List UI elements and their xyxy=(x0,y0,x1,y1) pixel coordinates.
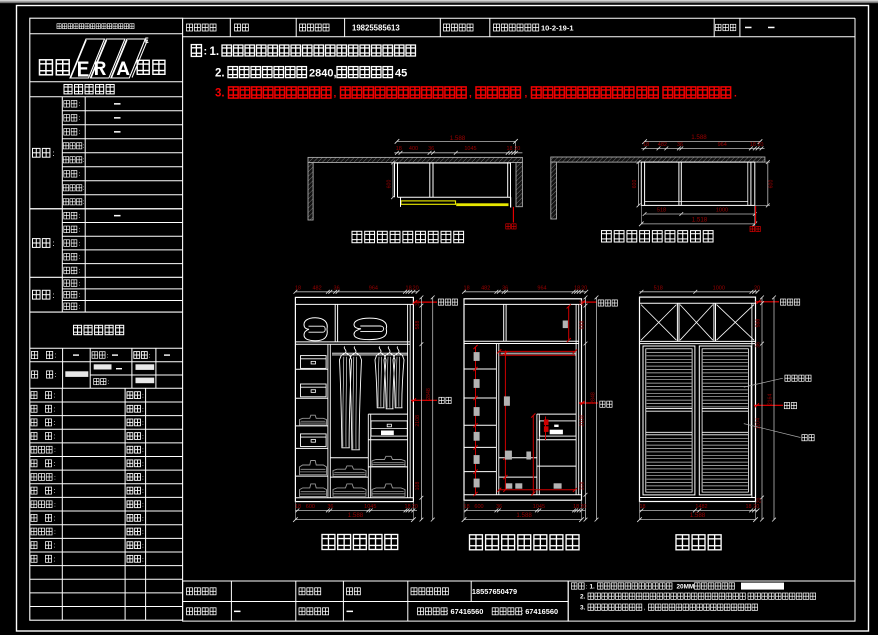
svg-text:1.: 1. xyxy=(590,583,596,590)
svg-text:18: 18 xyxy=(639,504,645,510)
svg-text::: : xyxy=(54,420,56,427)
svg-text:36: 36 xyxy=(327,504,333,510)
svg-text:482: 482 xyxy=(481,285,490,291)
svg-text::: : xyxy=(142,488,144,495)
svg-text::: : xyxy=(204,46,208,58)
svg-text:2.: 2. xyxy=(580,594,586,601)
svg-text:18: 18 xyxy=(574,285,580,291)
svg-text:600: 600 xyxy=(306,504,315,510)
svg-text::: : xyxy=(54,393,56,400)
svg-text:20: 20 xyxy=(581,285,587,291)
svg-text::: : xyxy=(79,280,81,287)
svg-text:18557650479: 18557650479 xyxy=(472,587,517,596)
svg-text:1045: 1045 xyxy=(533,504,545,510)
svg-text:482: 482 xyxy=(313,285,322,291)
svg-text:,: , xyxy=(334,89,337,100)
svg-text:964: 964 xyxy=(718,142,727,148)
svg-text:2108: 2108 xyxy=(415,415,421,427)
svg-text:18: 18 xyxy=(406,285,412,291)
svg-text::: : xyxy=(54,529,56,536)
svg-text:20: 20 xyxy=(514,146,520,152)
svg-text:1482: 1482 xyxy=(695,504,707,510)
svg-text:18: 18 xyxy=(396,146,402,152)
svg-text::: : xyxy=(142,529,144,536)
svg-text:36: 36 xyxy=(334,285,340,291)
svg-text:18: 18 xyxy=(506,146,512,152)
svg-text:1000: 1000 xyxy=(713,285,725,291)
svg-text:20: 20 xyxy=(754,285,760,291)
svg-text:20: 20 xyxy=(757,498,763,504)
svg-text::: : xyxy=(83,143,85,150)
svg-text:1.588: 1.588 xyxy=(516,512,532,519)
svg-text::: : xyxy=(149,353,151,360)
svg-text:1.588: 1.588 xyxy=(691,134,707,141)
svg-text:1.588: 1.588 xyxy=(450,135,466,142)
svg-text::: : xyxy=(79,115,81,122)
svg-text:,: , xyxy=(469,89,472,100)
svg-text::: : xyxy=(83,157,85,164)
svg-text::: : xyxy=(54,434,56,441)
svg-text::: : xyxy=(142,434,144,441)
svg-text:600: 600 xyxy=(769,180,775,189)
svg-text::: : xyxy=(79,213,81,220)
svg-text:36: 36 xyxy=(496,504,502,510)
svg-text:.: . xyxy=(734,89,737,100)
svg-text:3.: 3. xyxy=(580,605,586,612)
svg-text:600: 600 xyxy=(387,180,393,189)
svg-text:518: 518 xyxy=(657,207,666,213)
svg-text:45: 45 xyxy=(395,67,407,79)
svg-text::: : xyxy=(54,406,56,413)
svg-text:18: 18 xyxy=(573,504,579,510)
svg-text:2.: 2. xyxy=(215,67,225,79)
svg-text::: : xyxy=(142,406,144,413)
svg-text:67416560: 67416560 xyxy=(451,607,484,616)
svg-text::: : xyxy=(79,254,81,261)
svg-text:600: 600 xyxy=(632,180,638,189)
svg-text:20MM: 20MM xyxy=(677,583,695,590)
svg-text:1045: 1045 xyxy=(464,146,476,152)
svg-text:108: 108 xyxy=(579,482,585,491)
svg-text:964: 964 xyxy=(369,285,378,291)
svg-text:20: 20 xyxy=(757,142,763,148)
svg-text::: : xyxy=(79,171,81,178)
svg-text:36: 36 xyxy=(502,285,508,291)
svg-text:2108: 2108 xyxy=(579,415,585,427)
svg-text:2164: 2164 xyxy=(768,394,774,406)
svg-text:36: 36 xyxy=(415,300,421,306)
svg-text::: : xyxy=(79,129,81,136)
svg-text:18: 18 xyxy=(405,504,411,510)
svg-text::: : xyxy=(142,461,144,468)
svg-text:36: 36 xyxy=(579,300,585,306)
svg-text::: : xyxy=(54,543,56,550)
svg-text::: : xyxy=(54,502,56,509)
svg-text::: : xyxy=(521,609,523,616)
svg-text::: : xyxy=(54,461,56,468)
svg-text:588: 588 xyxy=(415,321,421,330)
svg-text:18: 18 xyxy=(643,142,649,148)
svg-text:,: , xyxy=(525,89,528,100)
svg-text::: : xyxy=(142,502,144,509)
svg-text::: : xyxy=(142,474,144,481)
svg-text::: : xyxy=(53,239,55,248)
svg-text:18: 18 xyxy=(295,285,301,291)
svg-text:1.588: 1.588 xyxy=(690,512,706,519)
svg-text::: : xyxy=(83,185,85,192)
svg-text:600: 600 xyxy=(474,504,483,510)
svg-text::: : xyxy=(79,227,81,234)
svg-text:20: 20 xyxy=(580,504,586,510)
svg-text:3.: 3. xyxy=(215,88,225,100)
svg-text::: : xyxy=(447,609,449,616)
svg-text:1104: 1104 xyxy=(756,418,762,429)
svg-text::: : xyxy=(53,291,55,300)
svg-text:964: 964 xyxy=(537,285,546,291)
svg-text:518: 518 xyxy=(654,285,663,291)
svg-text:1.518: 1.518 xyxy=(692,217,708,224)
svg-text:36: 36 xyxy=(428,146,434,152)
svg-text:1045: 1045 xyxy=(364,504,376,510)
svg-text::: : xyxy=(79,292,81,299)
svg-text::: : xyxy=(107,353,109,360)
svg-text::: : xyxy=(79,304,81,311)
svg-text:588: 588 xyxy=(579,321,585,330)
svg-text::: : xyxy=(142,515,144,522)
svg-text:36: 36 xyxy=(756,342,762,348)
svg-text::: : xyxy=(79,240,81,247)
svg-text:1.: 1. xyxy=(210,46,220,58)
svg-text:2840,: 2840, xyxy=(309,67,337,79)
svg-text::: : xyxy=(53,149,55,158)
svg-text::: : xyxy=(142,543,144,550)
svg-text::: : xyxy=(54,488,56,495)
svg-text::: : xyxy=(55,372,57,379)
svg-text:18: 18 xyxy=(464,504,470,510)
svg-text::: : xyxy=(54,556,56,563)
svg-text:482: 482 xyxy=(658,142,667,148)
svg-text:108: 108 xyxy=(415,482,421,491)
svg-text::: : xyxy=(54,447,56,454)
svg-text:20: 20 xyxy=(412,504,418,510)
svg-text:18: 18 xyxy=(750,142,756,148)
svg-text:1000: 1000 xyxy=(716,207,728,213)
svg-text:67416560: 67416560 xyxy=(525,607,558,616)
svg-text:400: 400 xyxy=(409,146,418,152)
svg-text:20: 20 xyxy=(753,504,759,510)
svg-text:19825585613: 19825585613 xyxy=(352,23,400,32)
svg-text::: : xyxy=(54,474,56,481)
svg-text:1.588: 1.588 xyxy=(348,512,364,519)
svg-text::: : xyxy=(142,420,144,427)
svg-text:20: 20 xyxy=(413,285,419,291)
svg-text:10-2-19-1: 10-2-19-1 xyxy=(541,23,574,32)
svg-text:18: 18 xyxy=(464,285,470,291)
svg-text::: : xyxy=(55,353,57,360)
svg-text::: : xyxy=(83,199,85,206)
svg-text::: : xyxy=(79,101,81,108)
svg-text::: : xyxy=(79,268,81,275)
svg-text::: : xyxy=(54,515,56,522)
svg-text::: : xyxy=(142,556,144,563)
svg-text:36: 36 xyxy=(677,142,683,148)
svg-text::: : xyxy=(142,393,144,400)
svg-text:2848: 2848 xyxy=(590,392,596,404)
svg-text:18: 18 xyxy=(295,504,301,510)
svg-text::: : xyxy=(142,447,144,454)
svg-text:2848: 2848 xyxy=(426,388,432,400)
svg-text:18: 18 xyxy=(745,504,751,510)
svg-text:588: 588 xyxy=(756,319,762,328)
